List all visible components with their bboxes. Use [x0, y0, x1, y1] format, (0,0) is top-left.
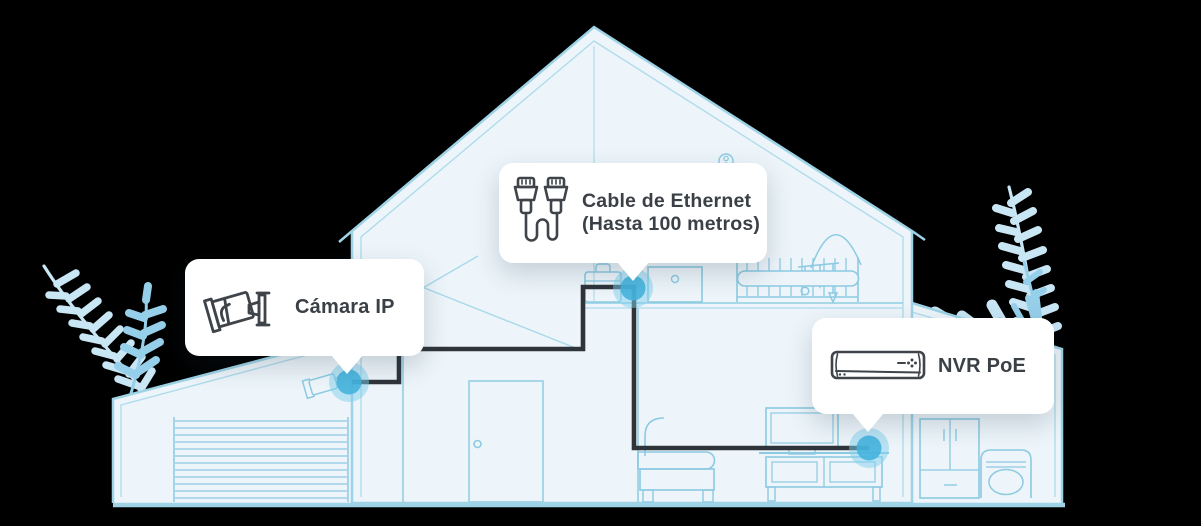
callout-ethernet-label-line1: Cable de Ethernet	[582, 190, 751, 212]
bullet-camera-icon	[201, 282, 279, 334]
nvr-connection-point	[849, 428, 889, 468]
callout-camera: Cámara IP	[185, 259, 424, 356]
callout-ethernet-label-line2: (Hasta 100 metros)	[582, 213, 760, 235]
callout-nvr-label: NVR PoE	[938, 355, 1026, 378]
callout-ethernet-label: Cable de Ethernet(Hasta 100 metros)	[582, 190, 760, 236]
house-illustration	[0, 0, 1201, 526]
poe-security-system-diagram: Cámara IP Cable de Ethernet	[0, 0, 1201, 526]
callout-nvr: NVR PoE	[812, 318, 1054, 414]
callout-camera-label: Cámara IP	[295, 296, 395, 319]
nvr-recorder-icon	[830, 350, 926, 382]
callout-ethernet: Cable de Ethernet(Hasta 100 metros)	[499, 163, 767, 263]
plant-left	[44, 266, 163, 402]
ethernet-cable-icon	[513, 176, 571, 250]
